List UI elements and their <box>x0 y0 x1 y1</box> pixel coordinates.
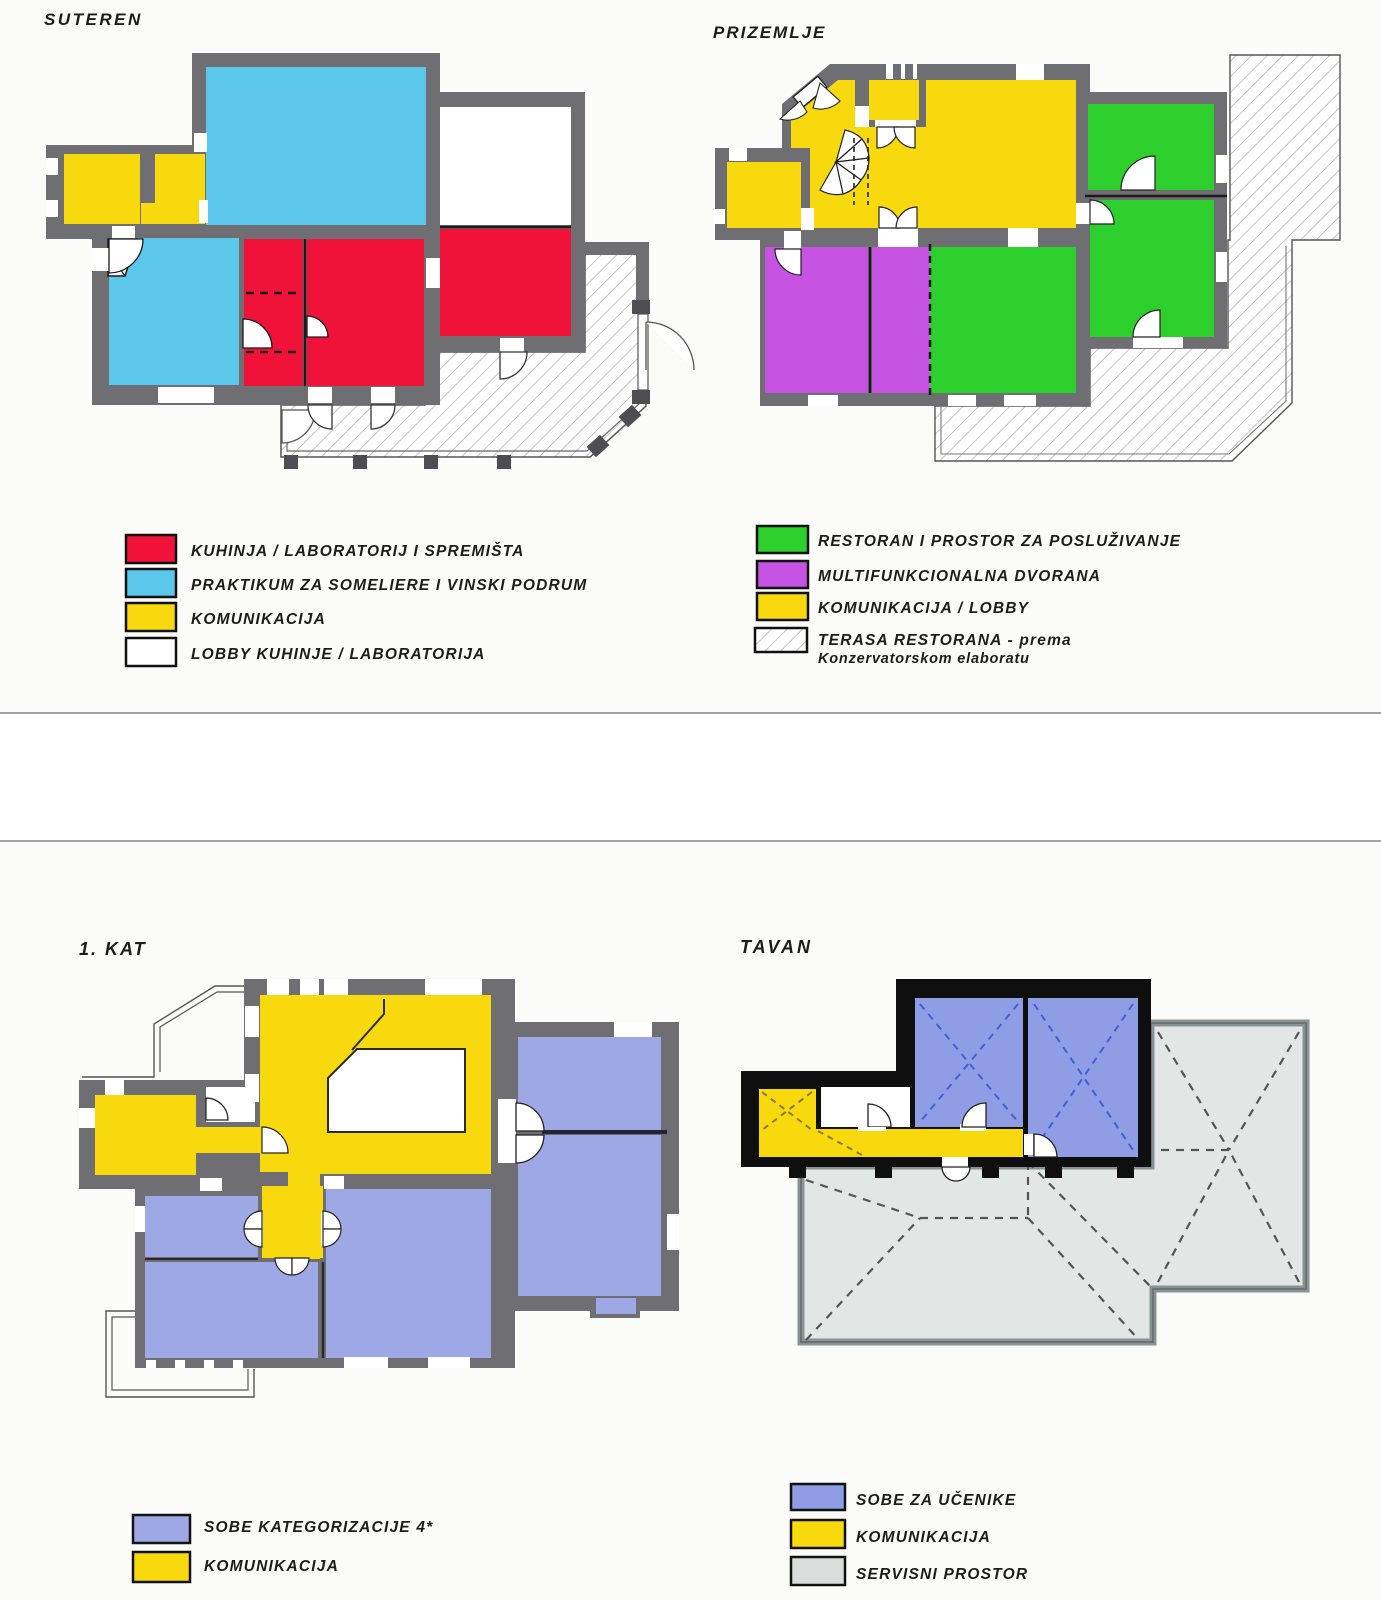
svg-text:1. KAT: 1. KAT <box>79 939 147 959</box>
svg-text:TAVAN: TAVAN <box>740 937 813 957</box>
svg-text:KOMUNIKACIJA: KOMUNIKACIJA <box>191 611 326 628</box>
svg-text:LOBBY KUHINJE / LABORATORIJA: LOBBY KUHINJE / LABORATORIJA <box>191 646 486 663</box>
svg-text:SERVISNI PROSTOR: SERVISNI PROSTOR <box>856 1566 1028 1583</box>
svg-text:SOBE ZA UČENIKE: SOBE ZA UČENIKE <box>856 1491 1016 1509</box>
svg-text:KOMUNIKACIJA: KOMUNIKACIJA <box>204 1558 339 1575</box>
svg-text:PRAKTIKUM ZA SOMELIERE I VINSK: PRAKTIKUM ZA SOMELIERE I VINSKI PODRUM <box>191 577 587 594</box>
svg-text:KOMUNIKACIJA / LOBBY: KOMUNIKACIJA / LOBBY <box>818 600 1030 617</box>
svg-text:TERASA RESTORANA - prema: TERASA RESTORANA - prema <box>818 632 1072 649</box>
svg-text:KOMUNIKACIJA: KOMUNIKACIJA <box>856 1529 991 1546</box>
svg-text:SOBE KATEGORIZACIJE 4*: SOBE KATEGORIZACIJE 4* <box>204 1519 433 1536</box>
svg-text:PRIZEMLJE: PRIZEMLJE <box>713 23 826 42</box>
svg-text:Konzervatorskom elaboratu: Konzervatorskom elaboratu <box>818 651 1030 667</box>
svg-text:SUTEREN: SUTEREN <box>44 10 143 29</box>
svg-text:KUHINJA / LABORATORIJ I SPREMI: KUHINJA / LABORATORIJ I SPREMIŠTA <box>191 542 525 560</box>
svg-text:MULTIFUNKCIONALNA DVORANA: MULTIFUNKCIONALNA DVORANA <box>818 568 1101 585</box>
svg-text:RESTORAN I PROSTOR ZA POSLUŽIV: RESTORAN I PROSTOR ZA POSLUŽIVANJE <box>818 532 1181 550</box>
